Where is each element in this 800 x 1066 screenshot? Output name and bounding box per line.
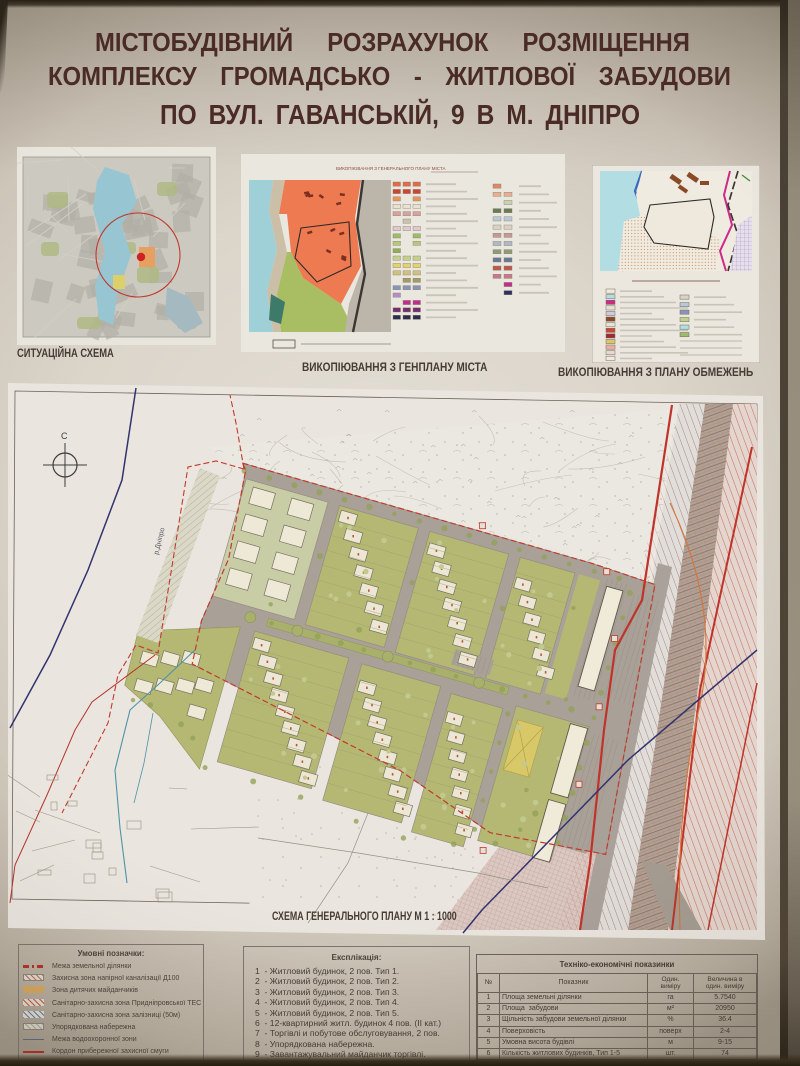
svg-text:ВИКОПІЮВАННЯ З ГЕНЕРАЛЬНОГО ПЛ: ВИКОПІЮВАННЯ З ГЕНЕРАЛЬНОГО ПЛАНУ МІСТА	[336, 166, 446, 171]
svg-text:С: С	[61, 431, 68, 441]
